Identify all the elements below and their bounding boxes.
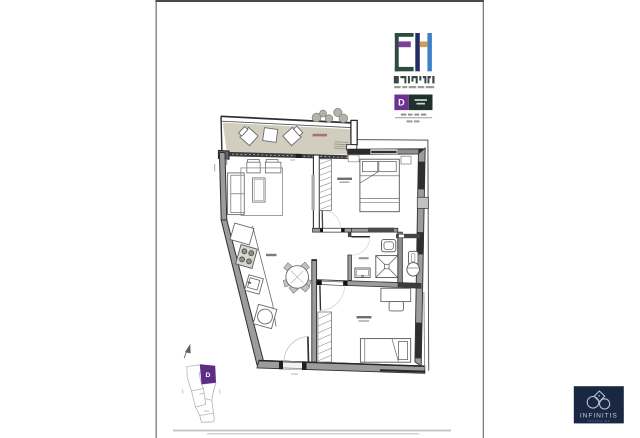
svg-text:D: D: [398, 98, 405, 108]
svg-text:IMMOBILIER: IMMOBILIER: [587, 419, 611, 423]
svg-text:D: D: [206, 372, 211, 379]
